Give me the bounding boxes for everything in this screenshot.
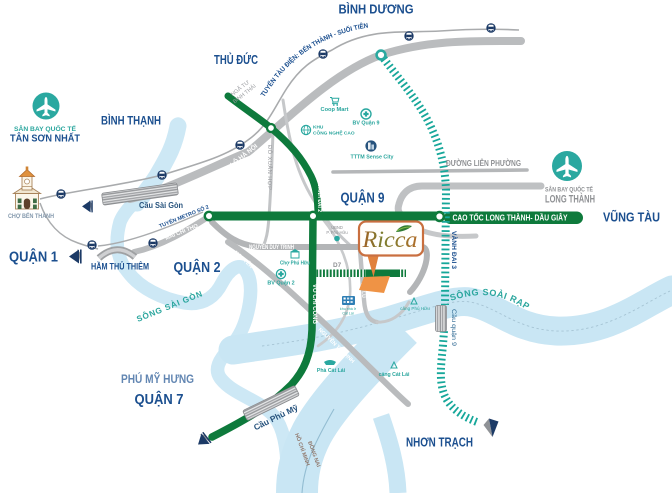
- svg-text:THỦ ĐỨC: THỦ ĐỨC: [214, 52, 258, 67]
- svg-text:P. Phú Hữu: P. Phú Hữu: [326, 230, 348, 235]
- svg-text:Cầu Sài Gòn: Cầu Sài Gòn: [139, 201, 183, 210]
- svg-text:VÀNH ĐAI 2: VÀNH ĐAI 2: [316, 184, 323, 212]
- svg-text:Cát Lái: Cát Lái: [342, 312, 354, 316]
- svg-text:cảng Phú Hữu: cảng Phú Hữu: [400, 306, 430, 311]
- svg-text:NHƠN TRẠCH: NHƠN TRẠCH: [406, 435, 473, 450]
- svg-text:QUẬN 2: QUẬN 2: [174, 258, 221, 276]
- svg-text:VŨNG TÀU: VŨNG TÀU: [603, 210, 660, 225]
- svg-text:BV Quận 2: BV Quận 2: [267, 281, 294, 287]
- svg-text:BÌNH DƯƠNG: BÌNH DƯƠNG: [339, 2, 414, 17]
- svg-text:ĐƯỜNG LIÊN PHƯỜNG: ĐƯỜNG LIÊN PHƯỜNG: [446, 157, 521, 168]
- svg-text:HẦM THỦ THIÊM: HẦM THỦ THIÊM: [91, 261, 149, 273]
- svg-text:BÌNH THẠNH: BÌNH THẠNH: [101, 113, 161, 128]
- svg-text:Coop Mart: Coop Mart: [321, 107, 349, 113]
- svg-text:cảng Cát Lái: cảng Cát Lái: [379, 372, 410, 378]
- svg-text:BV Quận 9: BV Quận 9: [353, 121, 380, 127]
- svg-text:KHU: KHU: [313, 125, 324, 131]
- svg-text:D7: D7: [333, 262, 342, 269]
- svg-text:NGUYỄN DUY TRINH: NGUYỄN DUY TRINH: [249, 242, 294, 251]
- svg-text:QUẬN 1: QUẬN 1: [9, 248, 58, 266]
- svg-text:Phà Cát Lái: Phà Cát Lái: [317, 368, 346, 374]
- svg-text:LONG THÀNH: LONG THÀNH: [545, 193, 595, 206]
- svg-text:QUẬN 7: QUẬN 7: [135, 390, 184, 408]
- svg-text:Cầu quận 9: Cầu quận 9: [450, 309, 456, 347]
- svg-text:QUẬN 9: QUẬN 9: [341, 189, 385, 207]
- svg-text:TÂN SƠN NHẤT: TÂN SƠN NHẤT: [10, 132, 81, 145]
- svg-text:ĐỖ XUÂN HỢP: ĐỖ XUÂN HỢP: [266, 145, 273, 190]
- svg-text:VÕ CHÍ CÔNG: VÕ CHÍ CÔNG: [311, 284, 319, 324]
- svg-text:khu nhà ở: khu nhà ở: [340, 307, 357, 311]
- svg-text:VÀNH ĐAI 3: VÀNH ĐAI 3: [450, 231, 457, 270]
- svg-text:CAO TỐC LONG THÀNH- DẦU GIÂY: CAO TỐC LONG THÀNH- DẦU GIÂY: [453, 212, 568, 223]
- svg-text:Chợ Phú Hữu: Chợ Phú Hữu: [280, 261, 310, 267]
- svg-text:Ricca: Ricca: [361, 227, 417, 252]
- svg-text:PHÚ MỸ HƯNG: PHÚ MỸ HƯNG: [121, 373, 194, 386]
- svg-text:TTTM Sense City: TTTM Sense City: [351, 155, 394, 161]
